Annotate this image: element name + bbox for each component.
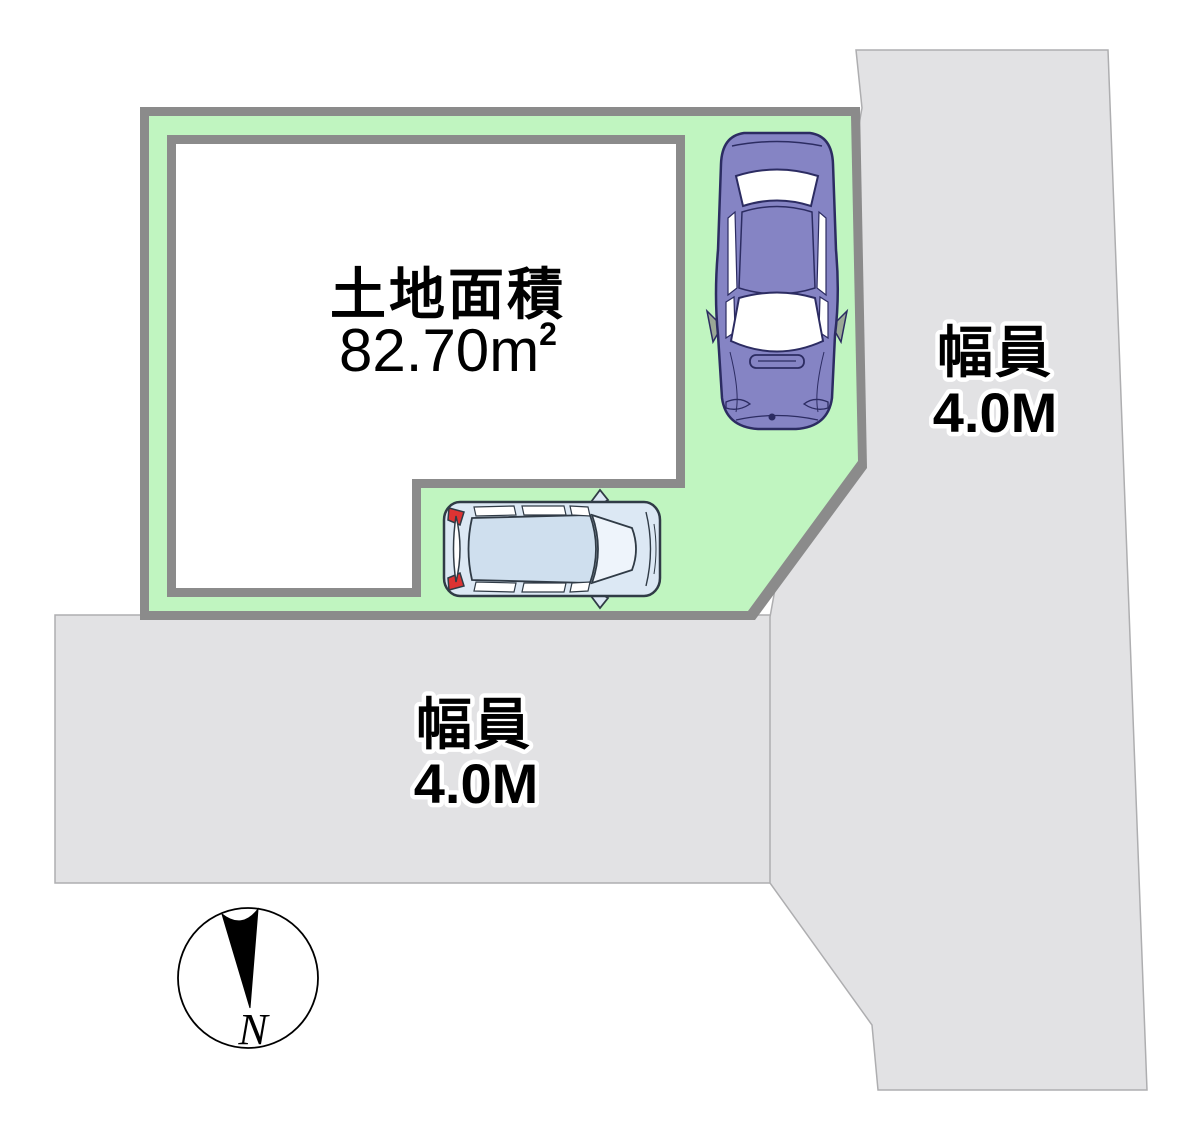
- land-area-number: 82.70: [339, 317, 489, 384]
- sedan-car: [707, 133, 847, 429]
- plot-layout-diagram: 土地面積 82.70m2: [0, 0, 1200, 1143]
- road-right-width-value: 4.0M: [933, 381, 1058, 444]
- wagon-side-window: [474, 506, 516, 516]
- wagon-side-window: [474, 582, 516, 592]
- wagon-side-window: [570, 506, 590, 516]
- wagon-side-window: [522, 506, 566, 515]
- wagon-roof-panel: [469, 515, 597, 583]
- sedan-windshield: [731, 293, 823, 352]
- road-bottom-width-label: 幅員: [416, 693, 532, 756]
- land-area-unit: m: [489, 317, 539, 384]
- sedan-left-side-window: [728, 212, 737, 295]
- wagon-car: [444, 490, 660, 608]
- road-bottom-width-value: 4.0M: [414, 752, 539, 815]
- diagram-canvas: 土地面積 82.70m2: [0, 0, 1200, 1143]
- wagon-side-window: [522, 583, 566, 592]
- compass-north-label: N: [237, 1005, 270, 1054]
- sedan-rear-window: [736, 170, 818, 207]
- land-area-value: 82.70m2: [339, 316, 557, 384]
- wagon-side-window: [570, 582, 590, 592]
- land-area-unit-exponent: 2: [539, 316, 557, 352]
- sedan-right-side-window: [817, 212, 826, 295]
- road-right-width-label: 幅員: [937, 321, 1053, 384]
- sedan-emblem-dot: [769, 414, 776, 421]
